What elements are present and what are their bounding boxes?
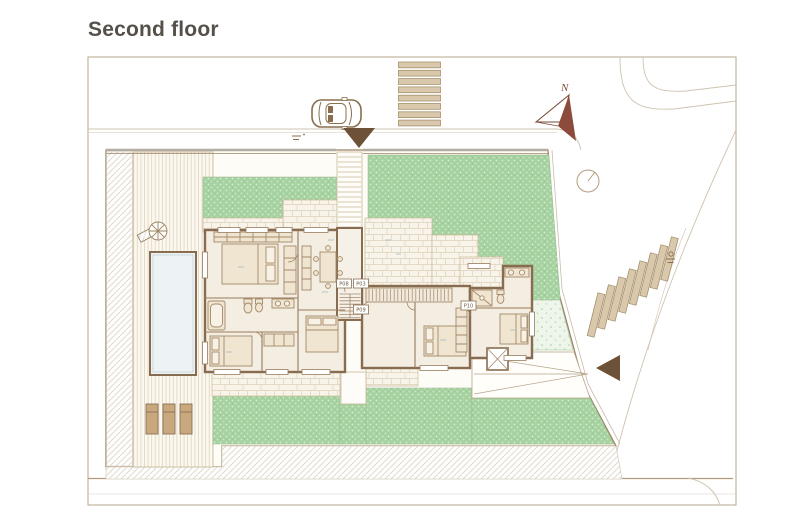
car-icon <box>312 98 361 130</box>
lounger <box>163 404 175 434</box>
badge-p10-label: P10 <box>464 304 473 310</box>
sun-loungers <box>146 404 192 434</box>
badge-p03: P03 <box>354 279 369 288</box>
badge-p10: P10 <box>461 301 476 310</box>
wing-sink <box>505 268 529 277</box>
bed-third <box>306 316 338 352</box>
double-sink <box>272 299 294 308</box>
bed-wing <box>500 314 528 344</box>
badge-p09: P09 <box>354 305 369 314</box>
lawn-bottom-right <box>472 398 614 444</box>
wardrobe-top <box>214 232 292 242</box>
badge-p08: P08 <box>337 279 352 288</box>
toilet <box>244 299 252 313</box>
terrace-south <box>212 372 340 396</box>
stairs-right <box>366 288 452 302</box>
floor-plan-page: Second floor <box>0 0 799 520</box>
kitchen-counter <box>302 246 311 290</box>
south-walkway <box>341 372 366 404</box>
clock-icon <box>577 170 599 192</box>
wardrobe-side <box>284 246 296 294</box>
bed-master <box>222 244 278 284</box>
site-plan-drawing: P08 P03 P09 P10 <box>0 0 799 520</box>
badge-p09-label: P09 <box>356 308 365 314</box>
lawn-bottom-middle <box>366 388 472 444</box>
bidet <box>256 299 263 312</box>
compass-north-label: N <box>560 82 569 94</box>
wing-toilet <box>497 290 504 303</box>
bed-second <box>210 336 252 366</box>
lounger <box>146 404 158 434</box>
terrace-main <box>365 218 432 288</box>
pool <box>150 252 196 375</box>
entrance-walkway <box>337 152 362 230</box>
closet-right <box>456 308 467 352</box>
lounger <box>180 404 192 434</box>
bathtub <box>208 301 225 330</box>
badge-p03-label: P03 <box>356 282 365 288</box>
badge-p08-label: P08 <box>339 282 348 288</box>
closet-small <box>264 334 294 346</box>
sidewalk-hatch-left <box>107 152 133 466</box>
